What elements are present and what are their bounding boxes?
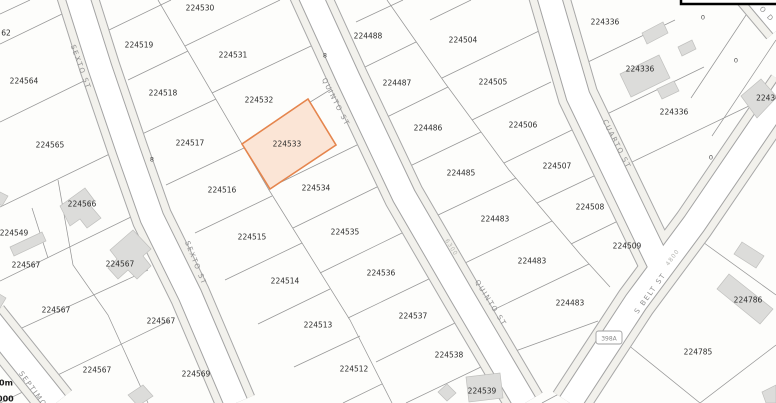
parcel-label: 224505 — [479, 78, 508, 87]
parcel-label: 224534 — [302, 184, 331, 193]
parcel-label: 224516 — [208, 186, 237, 195]
parcel-label: 224531 — [219, 51, 248, 60]
parcel-label: 224483 — [481, 215, 510, 224]
parcel-label: 224512 — [340, 365, 369, 374]
parcel-label: 224538 — [435, 351, 464, 360]
parcel-label: 224514 — [271, 277, 300, 286]
parcel-label: 224786 — [734, 296, 763, 305]
parcel-label: 224509 — [613, 242, 642, 251]
overlay-panel-corner — [681, 0, 776, 4]
parcel-label: 224537 — [399, 312, 428, 321]
parcel-label: 224486 — [414, 124, 443, 133]
lot-digit: 0 — [709, 154, 713, 162]
parcel-label: 224567 — [12, 261, 41, 270]
route-shield-label: 398A — [601, 336, 617, 343]
parcel-label: 224483 — [556, 299, 585, 308]
parcel-label: 224517 — [176, 139, 205, 148]
parcel-label: 224549 — [0, 229, 29, 238]
lot-digit: 0 — [701, 14, 705, 22]
parcel-label: 22436 — [756, 94, 776, 103]
parcel-label: 224518 — [149, 89, 178, 98]
lot-digit: 8 — [150, 156, 154, 164]
parcel-label: 224565 — [36, 141, 65, 150]
parcel-label: 224519 — [125, 41, 154, 50]
parcel-label: 224336 — [591, 18, 620, 27]
parcel-label: 62 — [1, 29, 11, 38]
parcel-label: 224567 — [42, 306, 71, 315]
parcel-label: 224539 — [468, 387, 497, 396]
parcel-label: 224504 — [449, 36, 478, 45]
cadastral-map-canvas[interactable]: 398A 62224564224565224566224549224567224… — [0, 0, 776, 403]
parcel-label: 224488 — [354, 32, 383, 41]
parcel-label: 224567 — [83, 366, 112, 375]
parcel-map-viewport[interactable]: 398A 62224564224565224566224549224567224… — [0, 0, 776, 403]
parcel-label: 224485 — [447, 169, 476, 178]
lot-digit: 8 — [323, 52, 327, 60]
parcel-label: 224566 — [68, 200, 97, 209]
lot-digit: 0 — [734, 57, 738, 65]
parcel-label: 224506 — [509, 121, 538, 130]
parcel-label: 224530 — [186, 4, 215, 13]
scale-fragment: 000 — [0, 395, 14, 403]
parcel-label: 224536 — [367, 269, 396, 278]
parcel-label: 224567 — [106, 260, 135, 269]
route-shield: 398A — [596, 331, 622, 344]
parcel-label: 224508 — [576, 203, 605, 212]
parcel-label: 224535 — [331, 228, 360, 237]
parcel-label: 224513 — [304, 321, 333, 330]
parcel-label: 224533 — [273, 140, 302, 149]
parcel-label: 224336 — [660, 108, 689, 117]
parcel-label: 224532 — [245, 96, 274, 105]
parcel-label: 224569 — [182, 370, 211, 379]
parcel-label: 224507 — [543, 162, 572, 171]
parcel-label: 224483 — [518, 257, 547, 266]
parcel-label: 224567 — [147, 317, 176, 326]
scale-fragment: 0m — [0, 379, 13, 388]
parcel-label: 224564 — [10, 77, 39, 86]
parcel-label: 224515 — [238, 233, 267, 242]
parcel-label: 224785 — [684, 348, 713, 357]
parcel-label: 224487 — [383, 79, 412, 88]
parcel-label: 224336 — [626, 65, 655, 74]
